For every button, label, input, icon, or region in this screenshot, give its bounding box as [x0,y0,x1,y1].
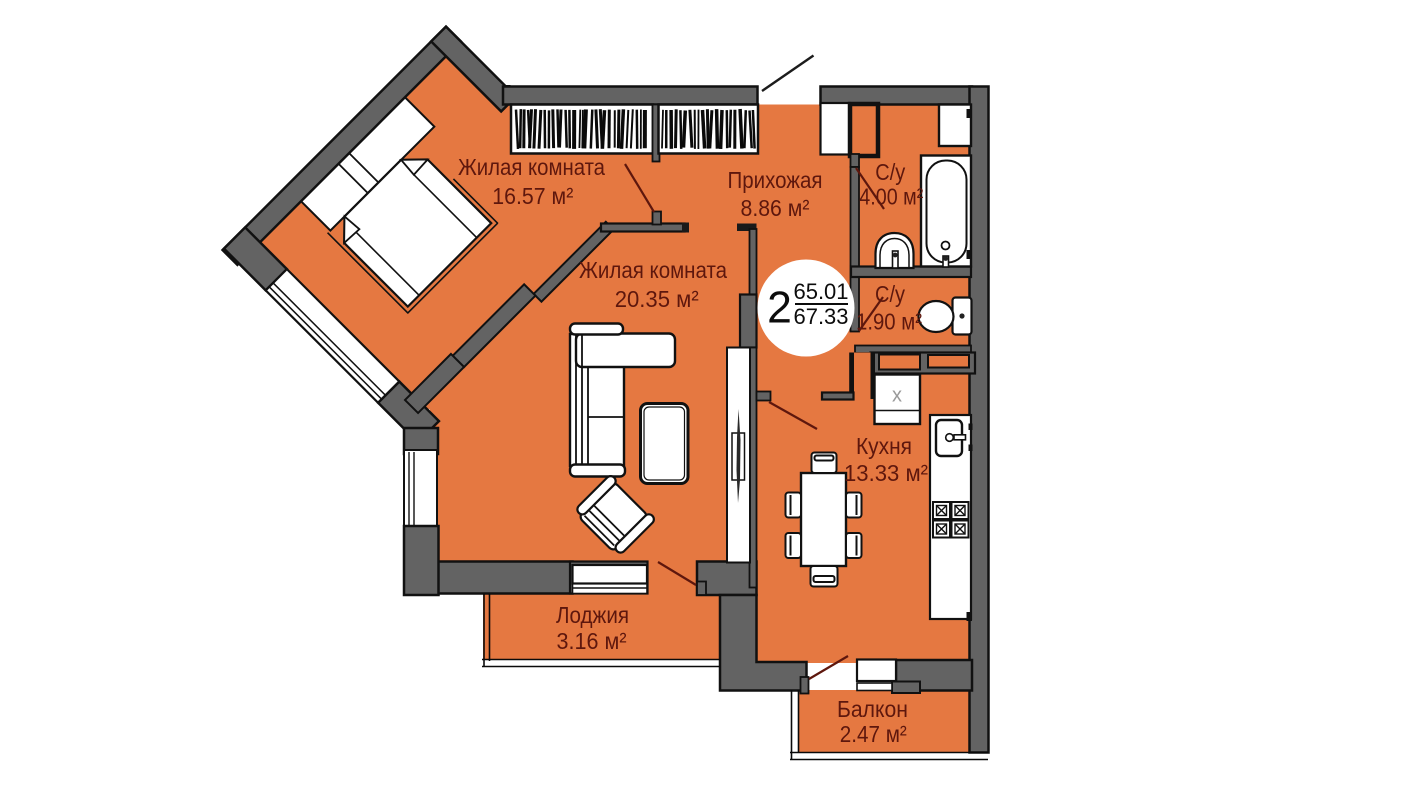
svg-text:4.00 м²: 4.00 м² [859,184,923,210]
svg-text:3.16 м²: 3.16 м² [557,628,627,654]
svg-text:2: 2 [767,284,792,333]
svg-text:С/у: С/у [875,159,905,185]
svg-text:20.35 м²: 20.35 м² [615,286,699,312]
svg-text:Кухня: Кухня [856,433,912,459]
svg-text:65.01: 65.01 [793,279,848,304]
svg-text:Жилая комната: Жилая комната [579,257,728,283]
svg-text:8.86 м²: 8.86 м² [741,195,810,221]
svg-text:С/у: С/у [875,281,905,307]
svg-text:Лоджия: Лоджия [556,602,629,628]
svg-text:Прихожая: Прихожая [728,167,823,193]
svg-text:13.33 м²: 13.33 м² [844,460,928,486]
svg-text:1.90 м²: 1.90 м² [856,309,922,335]
svg-text:Жилая комната: Жилая комната [458,154,606,180]
svg-text:2.47 м²: 2.47 м² [840,721,907,747]
svg-text:Балкон: Балкон [837,696,908,722]
svg-text:x: x [892,385,902,407]
svg-text:16.57 м²: 16.57 м² [492,183,573,209]
svg-text:67.33: 67.33 [793,304,848,329]
